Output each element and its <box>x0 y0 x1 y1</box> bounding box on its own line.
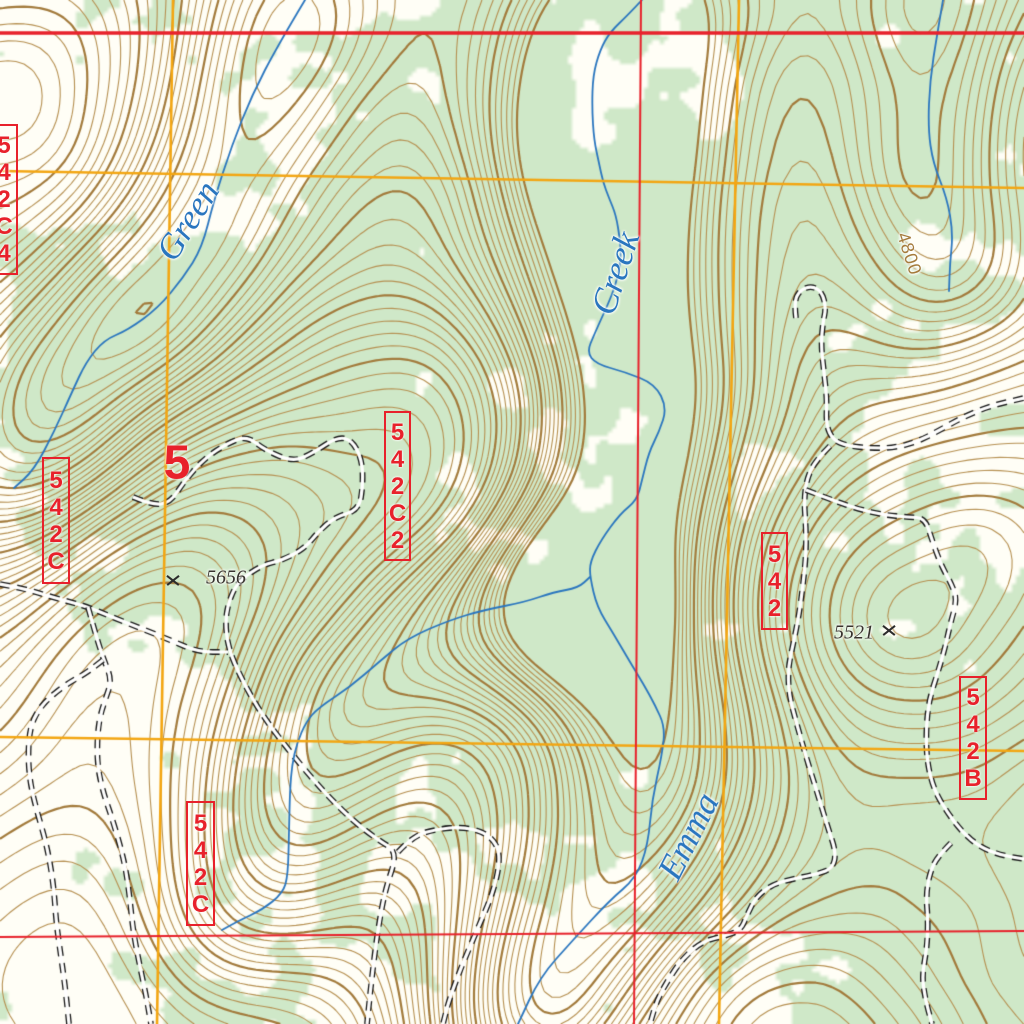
route-label-542C-south: 542C <box>186 801 215 926</box>
route-label-542C4: 542C4 <box>0 124 18 275</box>
spot-elevation-marker-5656 <box>167 574 180 587</box>
route-label-542C-west: 542C <box>42 457 70 584</box>
route-label-542B: 542B <box>959 676 987 800</box>
route-label-542: 542 <box>761 532 788 630</box>
route-label-542C2: 542C2 <box>384 411 411 561</box>
spot-elevation-marker-5521 <box>883 624 896 637</box>
topo-map: Green Creek Emma 4800 5 5656 5521 542C4 … <box>0 0 1024 1024</box>
map-canvas[interactable] <box>0 0 1024 1024</box>
